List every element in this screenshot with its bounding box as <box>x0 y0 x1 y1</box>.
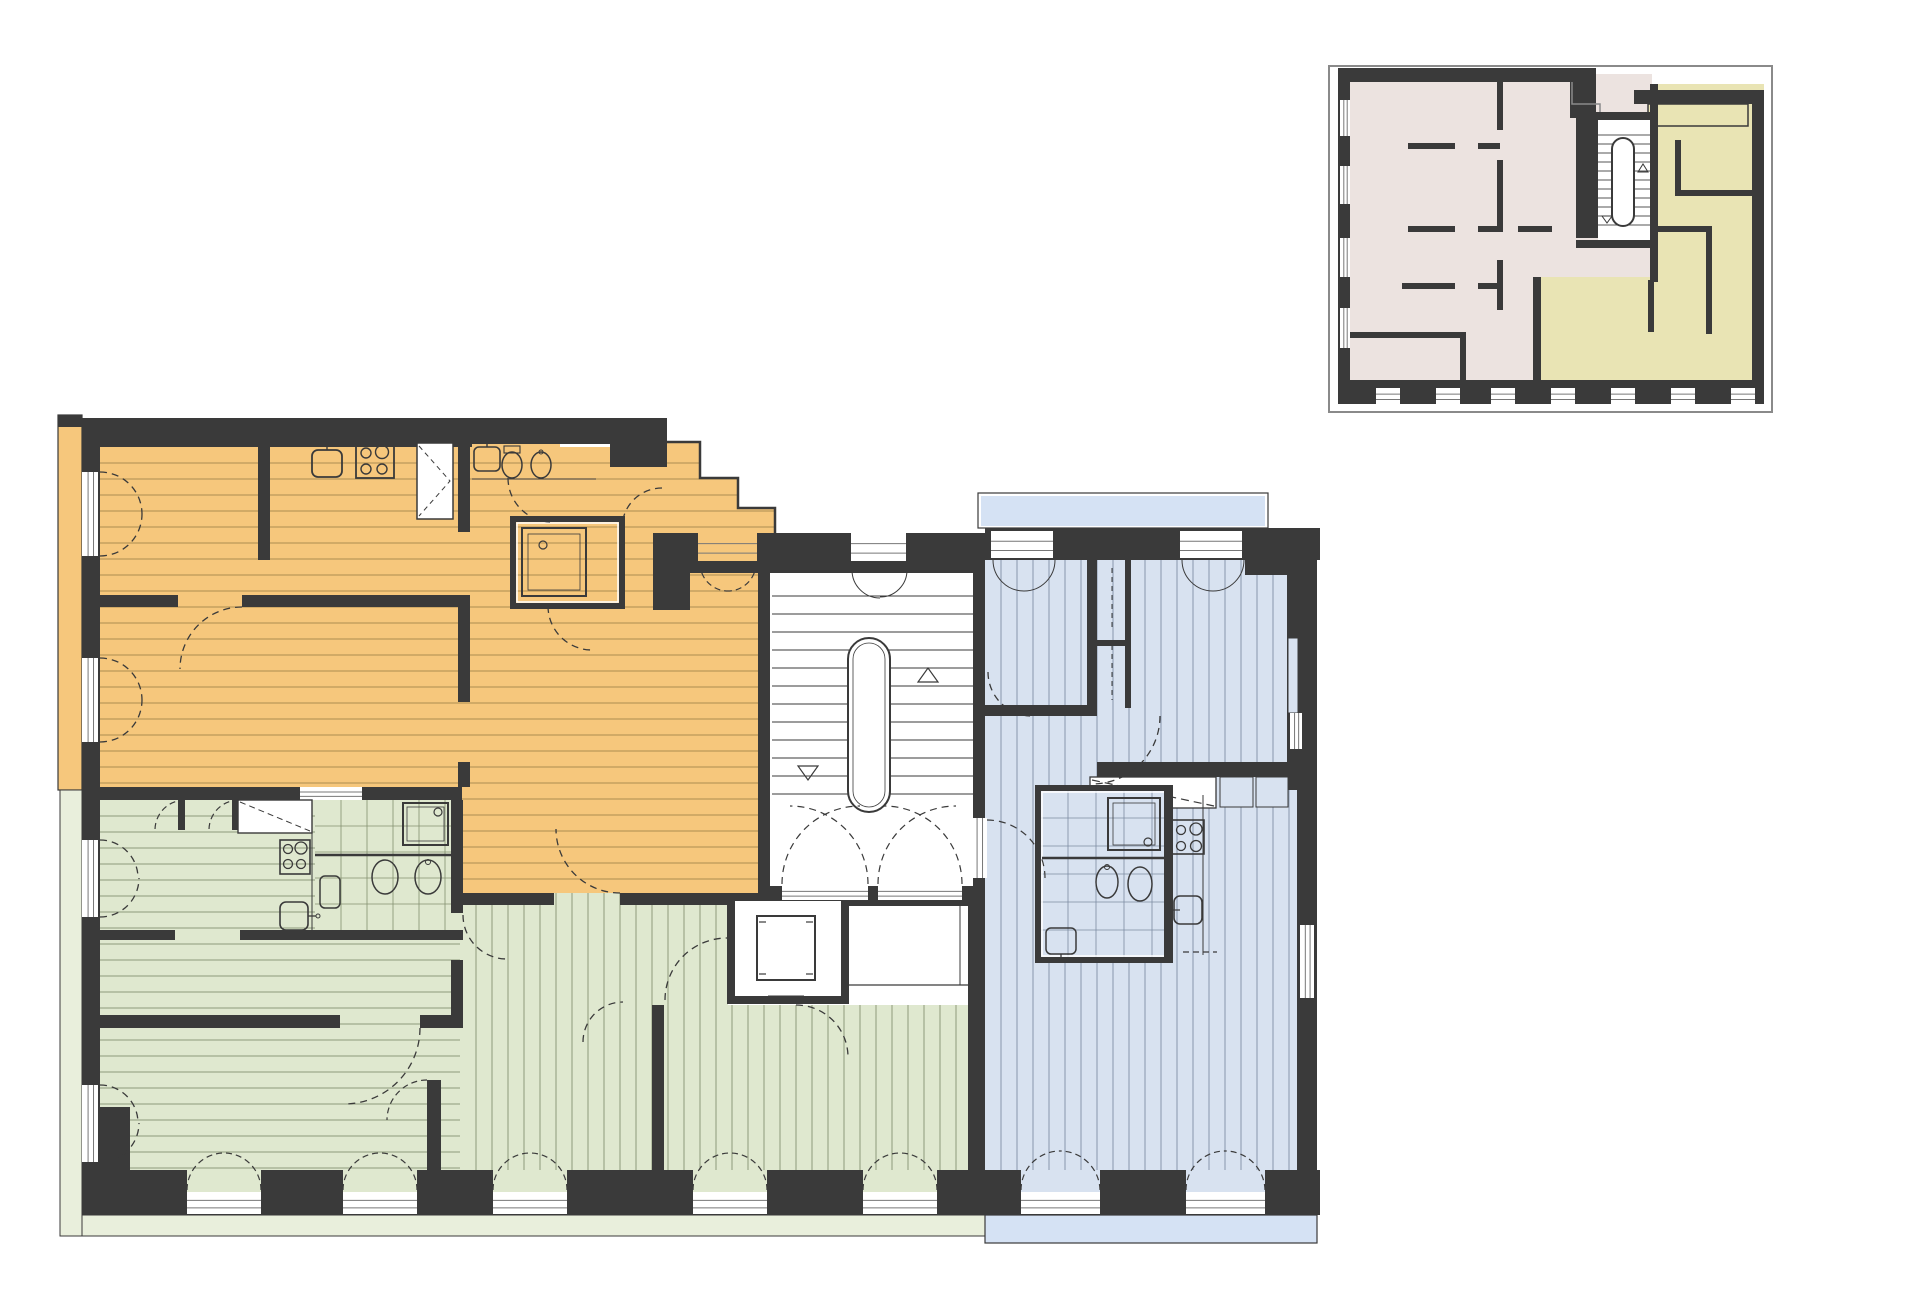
m-blue-entry-door-part <box>971 818 987 878</box>
ov-window-part <box>1671 388 1695 404</box>
ov-window-part <box>1491 388 1515 404</box>
m-window-part <box>1290 713 1302 749</box>
m-window <box>991 531 1053 558</box>
m-wall-segment <box>458 762 470 787</box>
m-balcony-bottom-blue <box>985 1215 1317 1243</box>
m-green-bath-floor <box>315 800 463 930</box>
m-french-door <box>343 1192 417 1214</box>
m-closet-cell <box>1256 777 1288 807</box>
m-lobby-stub <box>178 800 185 830</box>
m-wall-segment <box>100 930 175 940</box>
ov-window <box>1340 100 1350 136</box>
m-wall-jog <box>1245 560 1287 575</box>
m-kitchen-divider <box>258 447 270 560</box>
ov-window-part <box>1340 100 1350 136</box>
ov-wall-jog <box>1570 68 1596 118</box>
ov-wall-segment <box>1675 140 1681 196</box>
m-window <box>82 840 98 917</box>
ov-wall-segment <box>1648 226 1712 232</box>
m-wall-segment <box>1087 560 1097 712</box>
m-blue-kitchen-wall <box>1164 788 1172 960</box>
ov-window <box>1436 388 1460 404</box>
m-elevator-shaft <box>731 897 845 1000</box>
floor-plan-canvas <box>0 0 1920 1295</box>
m-french-door <box>1186 1192 1265 1214</box>
m-wall-segment <box>652 1005 664 1170</box>
m-balcony-left-orange <box>58 415 82 790</box>
ov-window <box>1340 308 1350 348</box>
ov-wall-segment <box>1706 292 1712 334</box>
ov-wall-segment <box>1408 143 1455 149</box>
m-landing-door-part <box>782 886 868 900</box>
ov-window-part <box>1340 166 1350 204</box>
m-elevator-lobby <box>845 897 968 985</box>
m-window <box>82 472 98 556</box>
m-window-part <box>82 1085 98 1162</box>
m-bay-floor <box>187 1170 261 1194</box>
m-wall-right <box>1297 790 1317 1215</box>
m-landing-door <box>782 886 868 900</box>
m-window-part <box>82 840 98 917</box>
m-stair-handrail <box>848 638 890 812</box>
ov-wall-segment <box>1675 190 1758 196</box>
ov-window-part <box>1436 388 1460 404</box>
m-wall-segment <box>420 1015 463 1028</box>
ov-window-part <box>1340 238 1350 277</box>
m-unit-boundary-wall <box>968 900 985 1170</box>
m-french-door-part <box>1021 1192 1100 1214</box>
ov-balcony <box>1648 104 1748 126</box>
m-window <box>1290 713 1302 749</box>
m-window-part <box>82 472 98 556</box>
m-unit-boundary-wall <box>82 787 462 800</box>
ov-wall-segment <box>1408 226 1455 232</box>
ov-unit-divider-wall <box>1533 277 1541 404</box>
m-french-door <box>187 1192 261 1214</box>
m-bay-floor <box>1021 1170 1100 1194</box>
floor-plan-page <box>0 0 1920 1295</box>
m-wall-segment <box>1097 762 1290 777</box>
ov-window-part <box>1340 308 1350 348</box>
m-wall-top <box>82 418 472 447</box>
ov-wall-segment <box>1648 280 1654 332</box>
m-stair-entry-door-part <box>850 533 907 561</box>
m-wall-segment <box>427 1080 441 1170</box>
m-landing-door-part <box>878 886 962 900</box>
m-window <box>1180 531 1242 558</box>
ov-wall-segment <box>1478 283 1503 289</box>
ov-window <box>1340 166 1350 204</box>
ov-window <box>1340 238 1350 277</box>
m-window-part <box>1180 531 1242 558</box>
m-bay-floor <box>693 1170 767 1194</box>
m-wall-segment <box>458 602 470 702</box>
ov-stair-wall-bottom <box>1576 240 1658 248</box>
ov-wall-segment <box>1478 226 1500 232</box>
m-closet-cell <box>1220 777 1253 807</box>
m-french-door-part <box>493 1192 567 1214</box>
m-closet-shelf <box>1097 640 1125 646</box>
m-window-part <box>82 658 98 742</box>
m-balcony-left-green <box>60 790 82 1236</box>
m-wall-segment <box>985 705 1097 716</box>
m-window-part <box>1300 925 1314 998</box>
m-balcony-bottom-green <box>82 1215 985 1236</box>
ov-window <box>1731 388 1755 404</box>
ov-window-part <box>1551 388 1575 404</box>
ov-window-part <box>1376 388 1400 404</box>
m-french-door <box>1021 1192 1100 1214</box>
m-wall-segment <box>100 595 178 607</box>
m-blue-entry-door <box>971 818 987 878</box>
m-bay-floor <box>493 1170 567 1194</box>
m-radiator-niche <box>1288 638 1298 713</box>
m-french-door-part <box>693 1192 767 1214</box>
ov-corridor-wall <box>1497 160 1503 232</box>
m-closet-wall <box>1125 560 1131 708</box>
m-boundary-window-part <box>300 787 362 800</box>
m-wall-segment <box>458 447 470 532</box>
ov-corridor-wall <box>1497 80 1503 130</box>
m-orange-entry-door <box>698 533 757 561</box>
m-french-door-part <box>187 1192 261 1214</box>
m-stair-wall-left <box>758 560 770 900</box>
m-bay-floor <box>863 1170 937 1194</box>
m-storage <box>238 800 312 833</box>
m-wall-segment <box>242 595 470 607</box>
ov-wall-segment <box>1518 226 1552 232</box>
m-window-part <box>991 531 1053 558</box>
ov-wall-segment <box>1706 232 1712 292</box>
m-wall-block <box>610 418 667 467</box>
m-wall-segment <box>451 800 463 913</box>
ov-stair-wall-left <box>1576 112 1598 238</box>
m-window <box>82 1085 98 1162</box>
m-unit-boundary-wall <box>462 893 554 905</box>
m-orange-entry-door-part <box>698 533 757 561</box>
m-bay-floor <box>1186 1170 1265 1194</box>
ov-wall-segment <box>1402 283 1455 289</box>
m-french-door <box>863 1192 937 1214</box>
m-wall-segment <box>82 1015 340 1028</box>
m-balcony-cap <box>58 415 82 427</box>
ov-window-part <box>1731 388 1755 404</box>
m-landing-door <box>878 886 962 900</box>
ov-window <box>1491 388 1515 404</box>
ov-wall-segment <box>1460 332 1466 396</box>
m-stair-entry-door <box>850 533 907 561</box>
ov-wall-top-a <box>1338 68 1572 82</box>
m-wall-column <box>653 533 690 610</box>
ov-wall-segment <box>1345 332 1463 338</box>
ov-window <box>1611 388 1635 404</box>
ov-window <box>1671 388 1695 404</box>
ov-wall-segment <box>1478 143 1500 149</box>
m-french-door <box>693 1192 767 1214</box>
m-french-door <box>493 1192 567 1214</box>
m-wall-segment <box>451 960 463 1020</box>
ov-stair-handrail <box>1612 138 1634 226</box>
ov-stair-wall-top <box>1576 112 1656 120</box>
m-window <box>1300 925 1314 998</box>
m-fridge <box>417 443 453 519</box>
m-french-door-part <box>1186 1192 1265 1214</box>
m-wall-segment <box>240 930 463 940</box>
m-window <box>82 658 98 742</box>
ov-window <box>1376 388 1400 404</box>
m-bay-floor <box>343 1170 417 1194</box>
ov-window <box>1551 388 1575 404</box>
m-french-door-part <box>863 1192 937 1214</box>
m-french-door-part <box>343 1192 417 1214</box>
m-boundary-window <box>300 787 362 800</box>
ov-window-part <box>1611 388 1635 404</box>
ov-wall-right <box>1752 90 1764 404</box>
m-balcony-top-blue <box>981 496 1265 526</box>
